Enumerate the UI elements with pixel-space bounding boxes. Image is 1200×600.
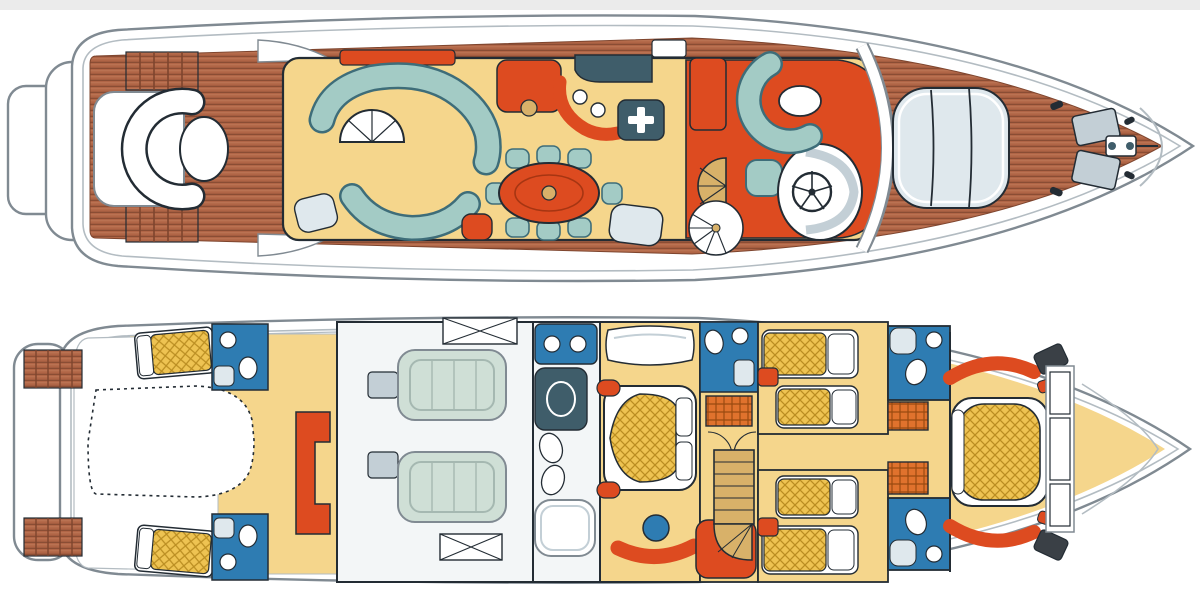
- galley-cabinet-fwd: [690, 58, 726, 130]
- mattress-2: [778, 479, 830, 515]
- galley-counter-top: [575, 55, 652, 82]
- sink-1: [544, 336, 560, 352]
- tender-outline: [88, 386, 254, 497]
- vip-pillows: [952, 410, 964, 494]
- photo-edge-band: [0, 0, 1200, 10]
- wardrobe: [706, 396, 752, 426]
- bathtub: [535, 500, 595, 556]
- shower: [890, 328, 916, 354]
- sink: [220, 554, 236, 570]
- vip-bed-mattress: [958, 404, 1040, 500]
- mattress-2: [778, 389, 830, 425]
- yacht-deck-plans-page: [0, 0, 1200, 600]
- vent-hatch-starboard: [440, 534, 502, 560]
- crew-bed-pillow: [136, 528, 153, 569]
- sink: [220, 332, 236, 348]
- toilet: [239, 525, 257, 547]
- crew-bed-mattress: [150, 330, 211, 375]
- side-deck-door: [652, 40, 686, 57]
- staircase-lobby: [696, 322, 758, 582]
- toilet: [239, 357, 257, 379]
- helm-seat: [746, 160, 782, 196]
- sink-2: [591, 103, 605, 117]
- sink: [926, 546, 942, 562]
- yacht-deck-plans: [0, 0, 1200, 600]
- crew-bathroom-port: [212, 324, 268, 390]
- engine-room: [337, 318, 533, 582]
- pilothouse-table: [779, 86, 821, 116]
- nightstand: [758, 518, 778, 536]
- crew-cabin-starboard: [134, 525, 216, 578]
- bow-lockers: [1046, 366, 1074, 532]
- sink: [732, 328, 748, 344]
- guest-cabin-starboard: [758, 470, 888, 582]
- pillow-1: [676, 398, 692, 436]
- wardrobe-starboard: [888, 462, 928, 494]
- sink: [926, 332, 942, 348]
- main-deck-plan: [8, 16, 1193, 281]
- crew-bathroom-starboard: [212, 514, 268, 580]
- sink-1: [573, 90, 587, 104]
- pillow: [828, 334, 854, 374]
- master-vanity-sofa: [606, 326, 694, 365]
- crew-bed-mattress: [150, 529, 211, 574]
- shower: [214, 518, 234, 538]
- master-bathroom: [533, 322, 600, 582]
- salon-lamp-table: [521, 100, 537, 116]
- aft-table: [180, 117, 228, 181]
- sink-2: [570, 336, 586, 352]
- cushion-2: [597, 482, 620, 498]
- vent-hatch-port: [443, 318, 517, 344]
- cushion-1: [597, 380, 620, 396]
- foredeck-sunpad: [893, 88, 1009, 208]
- crew-cabin-port: [134, 327, 216, 380]
- shower: [890, 540, 916, 566]
- master-cabin: [597, 322, 700, 582]
- guest-cabin-port: [758, 322, 888, 434]
- nightstand: [758, 368, 778, 386]
- crew-bed-pillow: [136, 335, 153, 376]
- pillow: [828, 530, 854, 570]
- guest-bathroom-port: [888, 326, 950, 400]
- stern-steps-port: [126, 52, 198, 90]
- guest-bathroom-starboard: [888, 498, 950, 570]
- lower-deck-plan: [14, 317, 1190, 582]
- pillow-2: [676, 442, 692, 480]
- shower: [734, 360, 754, 386]
- pillow-2: [832, 480, 856, 514]
- shower: [535, 368, 587, 430]
- wardrobe-port: [888, 402, 928, 430]
- sofa-end-cushion: [462, 214, 492, 240]
- helm-companion-chair: [608, 203, 664, 247]
- pillow-2: [832, 390, 856, 424]
- master-stool: [643, 515, 669, 541]
- staircase: [714, 450, 754, 560]
- shower: [214, 366, 234, 386]
